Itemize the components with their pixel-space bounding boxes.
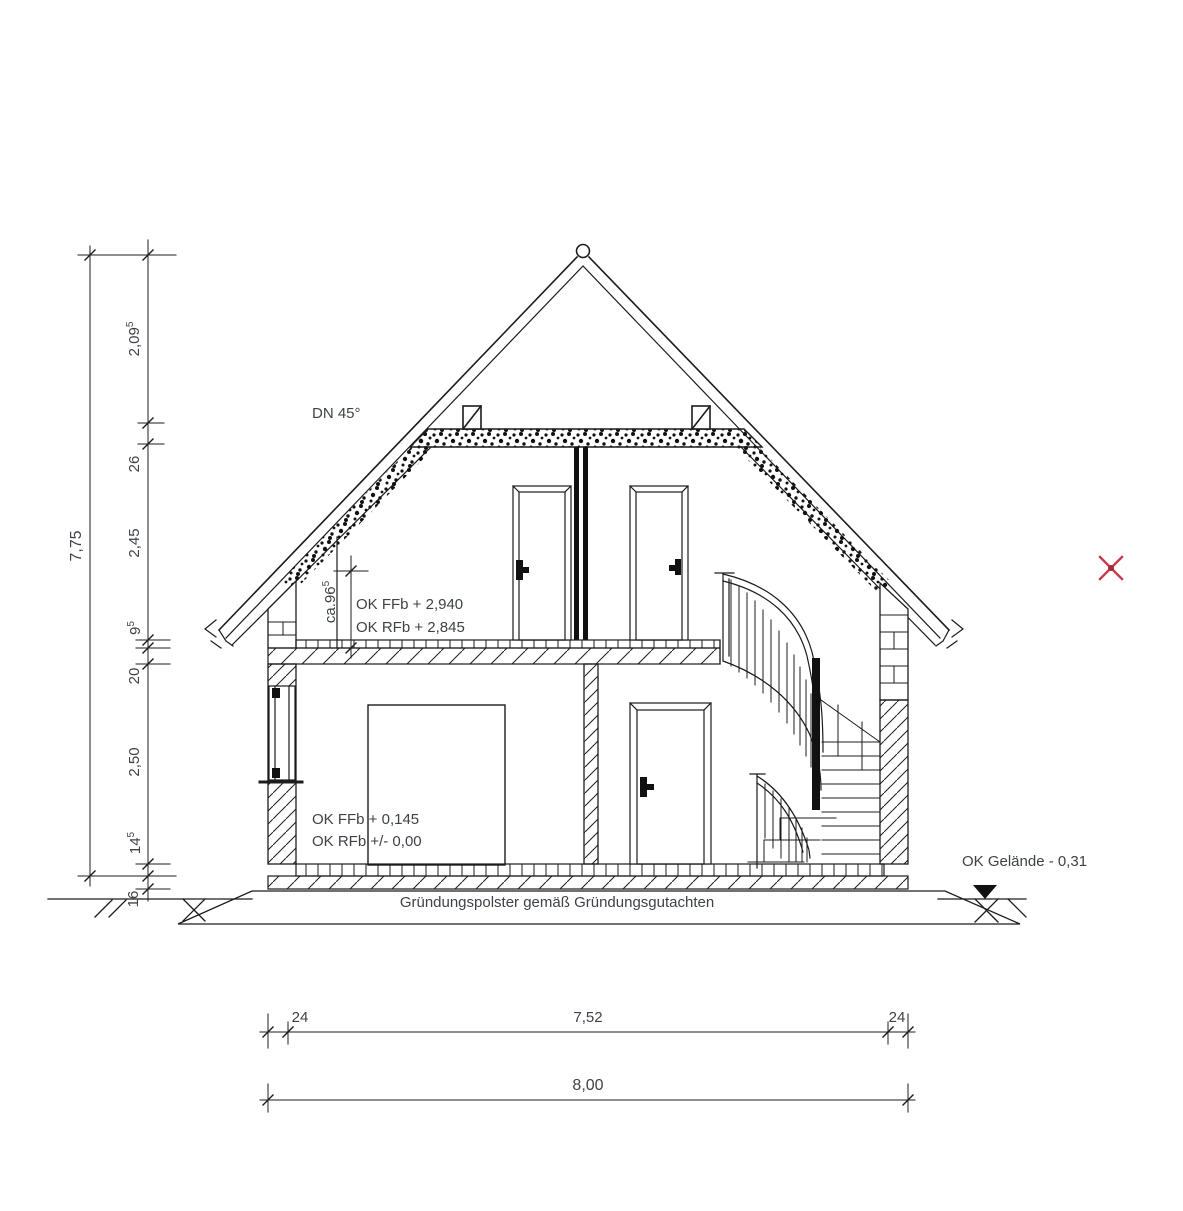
newel-post <box>812 658 820 810</box>
v-dim-seg-5: 2,50 <box>127 747 144 776</box>
eave-right <box>936 620 963 648</box>
ridge-cap <box>577 245 590 258</box>
door-handle <box>516 560 523 580</box>
right-exterior-wall <box>880 700 908 864</box>
upper-ffb-label: OK FFb + 2,940 <box>356 597 463 614</box>
red-x-marker <box>1100 557 1122 579</box>
h-dim-seg-1: 7,52 <box>573 1010 602 1027</box>
terrain-level-label: OK Gelände - 0,31 <box>962 854 1087 871</box>
roof-insulation-left <box>292 444 426 581</box>
roof-insulation-right <box>744 444 879 582</box>
door-handle <box>675 559 681 575</box>
gf-slab <box>268 876 908 889</box>
attic-door-1 <box>513 486 571 640</box>
v-dim-seg-2: 2,45 <box>127 528 144 557</box>
foundation-note: Gründungspolster gemäß Gründungsgutachte… <box>400 895 714 912</box>
terrain-level-marker <box>973 885 997 899</box>
attic-screed <box>296 640 720 648</box>
door-handle <box>640 777 647 797</box>
upper-rfb-label: OK RFb + 2,845 <box>356 620 465 637</box>
left-knee-wall <box>268 581 296 648</box>
h-dim-seg-0: 24 <box>292 1010 309 1027</box>
dimension-lines <box>78 240 915 1112</box>
gf-screed <box>296 864 884 876</box>
attic-door-2 <box>630 486 688 640</box>
eave-left <box>205 620 233 648</box>
stair-treads <box>821 700 880 854</box>
balusters-upper <box>731 580 818 787</box>
gf-ffb-label: OK FFb + 0,145 <box>312 812 419 829</box>
stair-post-lower <box>750 774 765 868</box>
v-dim-seg-1: 26 <box>127 456 144 473</box>
spiral-stair <box>715 573 880 868</box>
section-drawing-sheet: DN 45° ca.965 OK FFb + 2,940 OK RFb + 2,… <box>0 0 1183 1211</box>
v-dim-total: 7,75 <box>68 530 86 561</box>
ceiling-insulation <box>410 429 762 447</box>
h-dim-seg-2: 24 <box>889 1010 906 1027</box>
v-dim-seg-7: 16 <box>126 891 143 908</box>
attic-partition-b <box>583 447 588 640</box>
attic-slab <box>268 648 720 664</box>
gf-rfb-label: OK RFb +/- 0,00 <box>312 834 422 851</box>
v-dim-seg-0: 2,095 <box>127 322 144 357</box>
gf-door <box>630 703 711 864</box>
v-dim-seg-6: 145 <box>128 832 145 854</box>
v-dim-seg-3: 95 <box>128 621 145 635</box>
attic-partition-a <box>574 447 579 640</box>
balusters-lower <box>765 784 807 862</box>
h-dim-total: 8,00 <box>572 1077 603 1095</box>
interior-wall-gf <box>584 664 598 864</box>
v-dim-seg-4: 20 <box>127 668 144 685</box>
knee-height-label: ca.965 <box>323 581 340 623</box>
section-drawing <box>0 0 1183 1211</box>
roof-pitch-label: DN 45° <box>312 406 361 423</box>
